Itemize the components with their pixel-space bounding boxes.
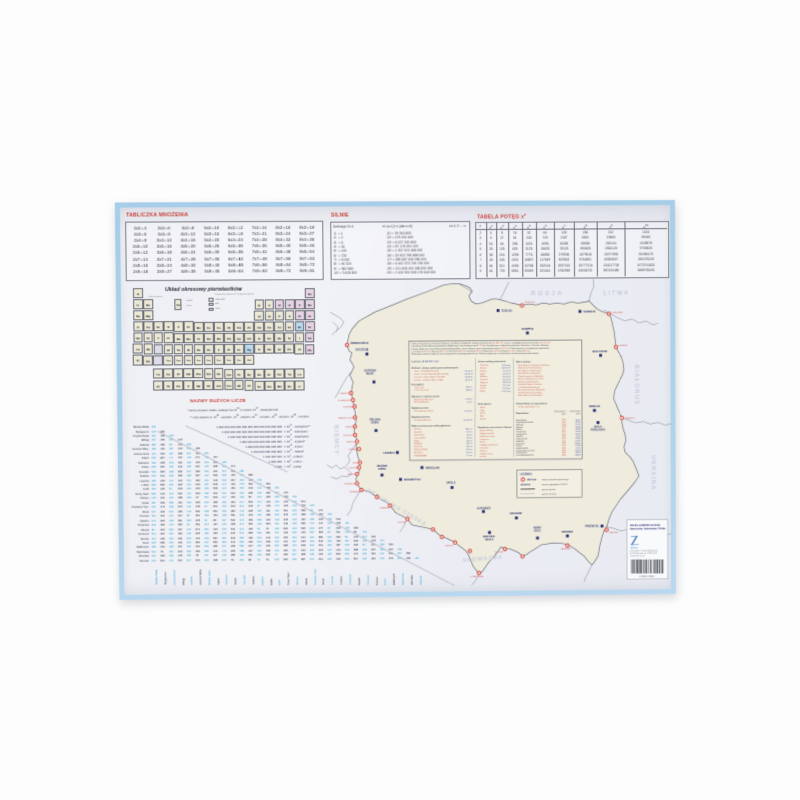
svg-text:Śniardwy: Śniardwy <box>480 364 489 367</box>
svg-text:Białowieski Park Narodowy: Białowieski Park Narodowy <box>518 366 542 369</box>
svg-text:demart: demart <box>630 546 637 549</box>
svg-text:Hala Stulecia we Wrocławiu: Hala Stulecia we Wrocławiu <box>518 394 542 397</box>
svg-text:zachodniopomorskie: zachodniopomorskie <box>516 455 534 457</box>
svg-text:SUWAŁKI: SUWAŁKI <box>583 310 595 314</box>
svg-text:Stare Miasto w Krakowie i Wiel: Stare Miasto w Krakowie i Wieliczce <box>518 364 551 367</box>
svg-text:Podział Polski na województwa:: Podział Polski na województwa: <box>516 402 548 405</box>
svg-text:Skrajna Turnia: Skrajna Turnia <box>480 453 494 455</box>
svg-text:Wielkość i skrajne punkty gran: Wielkość i skrajne punkty granic państwo… <box>411 366 458 369</box>
svg-text:60,0 m: 60,0 m <box>466 452 472 454</box>
svg-text:Drawsko: Drawsko <box>414 432 423 434</box>
svg-text:76,4 m: 76,4 m <box>466 437 472 439</box>
svg-text:OGRODNIKI: OGRODNIKI <box>612 312 623 314</box>
svg-text:Szpiglasowy Wierch: Szpiglasowy Wierch <box>480 444 499 446</box>
svg-text:i w Świdnicy (drewniane): i w Świdnicy (drewniane) <box>518 386 540 389</box>
svg-text:Raczki Elbląskie: Raczki Elbląskie <box>414 402 430 404</box>
svg-text:54°50' N: 54°50' N <box>465 371 473 373</box>
svg-text:ROSJA: ROSJA <box>531 290 564 297</box>
svg-text:GUBINEK: GUBINEK <box>348 449 357 451</box>
svg-text:Warta: Warta <box>480 412 486 415</box>
svg-text:56,0 km²: 56,0 km² <box>503 372 511 375</box>
svg-text:OSINÓW: OSINÓW <box>345 426 353 429</box>
svg-text:Kościoły Pokoju w Jaworze: Kościoły Pokoju w Jaworze <box>518 383 543 386</box>
svg-text:22,4 km²: 22,4 km² <box>503 387 511 390</box>
svg-text:Trześniowskie: Trześniowskie <box>414 455 428 457</box>
svg-text:Najwyższy i najniższy punkt:: Najwyższy i najniższy punkt: <box>411 395 440 398</box>
svg-text:ZGORZELEC: ZGORZELEC <box>344 483 356 485</box>
svg-text:ELBLĄG: ELBLĄG <box>501 309 512 313</box>
svg-text:Rzeki główne:: Rzeki główne: <box>478 404 492 406</box>
svg-text:Zamek krzyżacki w Malborku: Zamek krzyżacki w Malborku <box>518 375 543 378</box>
svg-text:65,0 m: 65,0 m <box>466 449 472 451</box>
svg-text:Liczba województw - 16: Liczba województw - 16 <box>518 405 540 408</box>
svg-text:Miedwie: Miedwie <box>480 376 488 378</box>
svg-text:LEGENDA: LEGENDA <box>520 473 532 476</box>
svg-text:Wdzydze: Wdzydze <box>414 443 423 445</box>
svg-text:MEDYKA: MEDYKA <box>527 478 537 481</box>
svg-text:Wisła: Wisła <box>480 407 486 409</box>
svg-text:SIENIAWKA: SIENIAWKA <box>350 491 361 494</box>
svg-text:Hańcza: Hańcza <box>414 429 422 431</box>
svg-text:OLSZTYN: OLSZTYN <box>521 327 533 331</box>
svg-text:49°00' N: 49°00' N <box>465 374 473 376</box>
svg-text:(tys.): (tys.) <box>562 412 566 415</box>
svg-text:24°08' E: 24°08' E <box>465 377 473 379</box>
svg-text:68,7 m: 68,7 m <box>466 443 472 445</box>
svg-text:Narew: Narew <box>480 418 486 420</box>
svg-text:LITWA: LITWA <box>603 291 629 297</box>
svg-text:Miasto średniowieczne Toruń: Miasto średniowieczne Toruń <box>518 377 543 380</box>
svg-text:Największe jezioro:: Największe jezioro: <box>411 417 430 419</box>
svg-text:z zach. na wsch.: z zach. na wsch. <box>414 390 429 392</box>
svg-text:Ludność: 38 609 997 osób: Ludność: 38 609 997 osób <box>411 361 439 363</box>
svg-text:KOŁBASKOWO: KOŁBASKOWO <box>338 399 352 402</box>
svg-text:SIEDLCE: SIEDLCE <box>589 404 600 408</box>
svg-text:Rysy (Tatry Wysokie): Rysy (Tatry Wysokie) <box>414 398 433 401</box>
svg-text:35,3 km²: 35,3 km² <box>503 375 511 378</box>
svg-text:- granice umowne: - granice umowne <box>541 493 558 496</box>
svg-text:Beskid: Beskid <box>480 456 487 458</box>
svg-text:Dąbie: Dąbie <box>480 373 486 375</box>
svg-text:www.demart.com.pl: www.demart.com.pl <box>630 554 645 557</box>
svg-text:BARWINEK: BARWINEK <box>561 547 572 550</box>
svg-text:MEDYKA: MEDYKA <box>609 531 618 534</box>
svg-text:21,87 km²: 21,87 km² <box>501 390 510 393</box>
svg-text:Najdłuższa rzeka:: Najdłuższa rzeka: <box>411 408 429 410</box>
svg-text:Mamry: Mamry <box>480 368 487 370</box>
svg-text:Niegocin: Niegocin <box>480 382 489 384</box>
svg-text:26,0 km²: 26,0 km² <box>503 381 511 384</box>
svg-text:Kościelec: Kościelec <box>480 447 489 449</box>
svg-text:Morzycko: Morzycko <box>414 452 424 454</box>
svg-text:Niebieska Turnia: Niebieska Turnia <box>480 436 496 438</box>
svg-text:Największe wzniesienia w Tatra: Największe wzniesienia w Tatrach: <box>478 426 512 429</box>
svg-text:- miasto wojewódzkie 740 670: - miasto wojewódzkie 740 670 <box>541 483 568 486</box>
svg-text:- miejsce przejścia graniczne: - miejsce przejścia granicznego <box>541 478 569 481</box>
svg-text:CIESZYN: CIESZYN <box>445 545 454 547</box>
svg-text:GUBIN: GUBIN <box>352 462 359 464</box>
svg-text:Wuksniki: Wuksniki <box>414 446 423 448</box>
svg-text:Mięguszowiecki: Mięguszowiecki <box>480 433 495 435</box>
svg-text:14°07' E: 14°07' E <box>465 380 473 382</box>
svg-text:79,3 m: 79,3 m <box>466 435 472 437</box>
svg-text:Szkolne podkładki na biurko: Szkolne podkładki na biurko <box>630 525 661 527</box>
svg-text:- granice państw: - granice państw <box>541 488 556 491</box>
svg-text:Świnica: Świnica <box>480 449 488 452</box>
svg-text:NIEMCY: NIEMCY <box>332 425 338 456</box>
svg-text:Babięty Wielkie: Babięty Wielkie <box>414 448 429 451</box>
svg-text:NOWYSĄCZ: NOWYSĄCZ <box>533 526 541 533</box>
svg-text:79,7 m: 79,7 m <box>466 432 472 434</box>
svg-text:22892: 22892 <box>575 455 580 457</box>
svg-text:Mnich: Mnich <box>480 442 486 444</box>
svg-text:Wisła (Barania Góra): Wisła (Barania Góra) <box>414 411 433 413</box>
svg-text:KUŹNICA: KUŹNICA <box>619 344 628 347</box>
svg-text:Ważne obiekty:: Ważne obiekty: <box>516 360 531 363</box>
svg-text:Czarny Staw: Czarny Staw <box>414 436 426 439</box>
svg-text:SZCZECIN: SZCZECIN <box>355 347 368 351</box>
svg-text:na pn. - Przylądek Rozewie: na pn. - Przylądek Rozewie <box>414 371 440 373</box>
svg-text:113,8 km²: 113,8 km² <box>464 419 473 422</box>
svg-text:ROSÓWEK: ROSÓWEK <box>343 406 354 409</box>
svg-text:OLSZYNA: OLSZYNA <box>349 466 359 469</box>
svg-text:TERESPOL: TERESPOL <box>625 418 635 420</box>
svg-text:na zach. - kolano Odry k. Cedy: na zach. - kolano Odry k. Cedyni <box>414 379 444 381</box>
svg-text:OPOLE: OPOLE <box>446 480 455 484</box>
svg-text:BIAŁORUŚ: BIAŁORUŚ <box>633 365 640 406</box>
svg-text:KUDOWA: KUDOWA <box>398 521 407 524</box>
svg-text:Jeziorak: Jeziorak <box>480 379 489 381</box>
svg-text:Śniardwy (Mazury): Śniardwy (Mazury) <box>414 419 431 422</box>
svg-text:Rozciągłość:: Rozciągłość: <box>412 384 425 386</box>
svg-text:LEGNICA: LEGNICA <box>383 451 395 455</box>
svg-text:Stare Miasto w Warszawie: Stare Miasto w Warszawie <box>518 369 542 372</box>
svg-text:73,0 m: 73,0 m <box>466 440 472 442</box>
svg-text:24,7 km²: 24,7 km² <box>503 384 511 387</box>
svg-text:ŁĘKNICA: ŁĘKNICA <box>347 473 356 476</box>
svg-text:Kościoły drewniane Małopolski: Kościoły drewniane Małopolski <box>518 388 545 391</box>
svg-text:UKRAINA: UKRAINA <box>649 455 655 491</box>
svg-text:na wsch. - kolano Bugu k. Horo: na wsch. - kolano Bugu k. Horodła <box>414 376 446 378</box>
svg-text:KRAJNIK DOLNY: KRAJNIK DOLNY <box>338 417 354 420</box>
svg-text:dwustronne, laminowane. Polska: dwustronne, laminowane. Polska <box>630 527 666 530</box>
svg-text:Kalwaria Zebrzydowska: Kalwaria Zebrzydowska <box>518 380 540 383</box>
svg-text:Większe jeziora przez wielką g: Większe jeziora przez wielką głębokość: <box>411 426 451 428</box>
svg-text:LUBIESZYN: LUBIESZYN <box>339 393 350 395</box>
svg-text:32,2 km²: 32,2 km² <box>503 378 511 381</box>
svg-text:102,8 km²: 102,8 km² <box>501 367 510 370</box>
svg-text:KROSNO: KROSNO <box>562 529 573 533</box>
svg-text:CHYŻNE: CHYŻNE <box>495 551 503 554</box>
svg-text:68,0 m: 68,0 m <box>466 446 472 448</box>
svg-text:108,5 m: 108,5 m <box>465 429 473 431</box>
svg-text:Rysy (2499 m): Rysy (2499 m) <box>480 430 493 432</box>
svg-text:689 km: 689 km <box>466 390 473 392</box>
svg-text:KATOWICE: KATOWICE <box>477 506 491 510</box>
svg-text:Stare Miasto w Zamościu: Stare Miasto w Zamościu <box>518 372 540 375</box>
svg-text:BIAŁYSTOK: BIAŁYSTOK <box>593 349 608 353</box>
svg-text:Gardno: Gardno <box>480 385 488 387</box>
svg-text:Łebsko: Łebsko <box>480 371 487 373</box>
svg-text:1 047 km: 1 047 km <box>464 411 473 413</box>
svg-text:KOSTRZYN: KOSTRZYN <box>343 435 354 437</box>
svg-text:9 788374 276542: 9 788374 276542 <box>639 576 655 578</box>
svg-text:Jamno: Jamno <box>480 388 487 390</box>
svg-text:Wielki Staw: Wielki Staw <box>414 434 425 437</box>
svg-text:KRAKÓW: KRAKÓW <box>520 483 531 486</box>
svg-text:57,0 m: 57,0 m <box>466 455 472 457</box>
svg-text:-1,8 m: -1,8 m <box>467 402 473 404</box>
svg-text:113,8 km²: 113,8 km² <box>502 364 511 367</box>
svg-text:(km²): (km²) <box>576 412 581 415</box>
svg-text:ŁYSA POLANA: ŁYSA POLANA <box>471 575 484 578</box>
svg-text:WAŁBRZYCH: WAŁBRZYCH <box>404 478 421 482</box>
svg-text:Województwo: Województwo <box>516 412 530 415</box>
svg-text:ŚWIECKO: ŚWIECKO <box>347 440 356 443</box>
svg-text:LUBAWKA: LUBAWKA <box>379 506 389 509</box>
svg-text:71,4 km²: 71,4 km² <box>503 370 511 373</box>
svg-text:Park Mużakowski nad Nysą: Park Mużakowski nad Nysą <box>518 391 543 394</box>
svg-text:Kazalnica: Kazalnica <box>480 439 490 441</box>
svg-text:GRONOWO: GRONOWO <box>524 302 535 304</box>
svg-text:Jeziora według powierzchni:: Jeziora według powierzchni: <box>478 361 506 363</box>
svg-text:na pd. - szczyt Opołonek (Bies: na pd. - szczyt Opołonek (Bieszczady) <box>414 372 449 375</box>
svg-text:WROCŁAW: WROCŁAW <box>426 466 440 470</box>
